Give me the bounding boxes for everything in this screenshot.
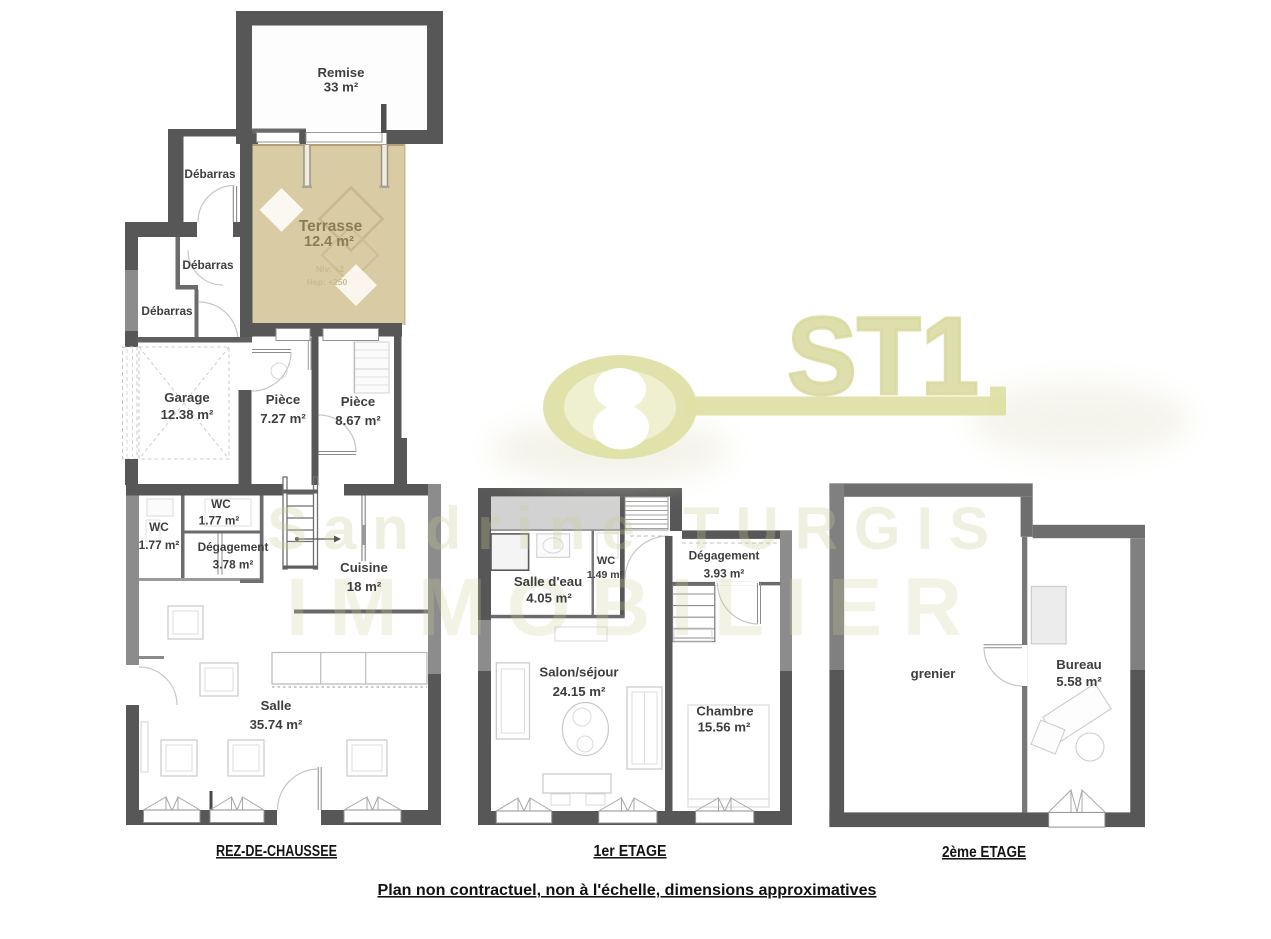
svg-text:Garage: Garage bbox=[164, 390, 209, 405]
svg-text:12.38 m²: 12.38 m² bbox=[161, 407, 214, 422]
svg-text:24.15 m²: 24.15 m² bbox=[553, 684, 606, 699]
svg-text:33 m²: 33 m² bbox=[324, 80, 359, 95]
svg-text:Hsp: +250: Hsp: +250 bbox=[307, 277, 348, 287]
svg-text:Débarras: Débarras bbox=[184, 167, 236, 181]
svg-text:3.93 m²: 3.93 m² bbox=[704, 567, 745, 581]
svg-text:Terrasse: Terrasse bbox=[299, 218, 363, 235]
svg-text:WC: WC bbox=[211, 497, 231, 511]
svg-text:15.56 m²: 15.56 m² bbox=[698, 720, 751, 735]
svg-text:Cuisine: Cuisine bbox=[340, 560, 388, 575]
svg-text:Salon/séjour: Salon/séjour bbox=[539, 665, 618, 680]
svg-text:WC: WC bbox=[149, 520, 169, 534]
svg-text:7.27 m²: 7.27 m² bbox=[260, 411, 306, 426]
svg-text:Remise: Remise bbox=[318, 65, 365, 80]
svg-text:3.78 m²: 3.78 m² bbox=[213, 558, 254, 572]
svg-text:Sandrine TURGIS: Sandrine TURGIS bbox=[267, 495, 989, 562]
svg-text:Niv: +2: Niv: +2 bbox=[316, 264, 344, 274]
svg-text:2ème ETAGE: 2ème ETAGE bbox=[942, 844, 1026, 861]
svg-text:ST1: ST1 bbox=[787, 295, 979, 418]
svg-text:Pièce: Pièce bbox=[266, 392, 300, 407]
svg-text:Plan non contractuel, non à l': Plan non contractuel, non à l'échelle, d… bbox=[378, 882, 877, 899]
svg-text:IMMOBILIER: IMMOBILIER bbox=[286, 562, 962, 653]
svg-text:4.05 m²: 4.05 m² bbox=[526, 591, 572, 606]
svg-text:Bureau: Bureau bbox=[1056, 657, 1101, 672]
svg-text:1.49 m²: 1.49 m² bbox=[587, 569, 624, 581]
svg-text:Dégagement: Dégagement bbox=[689, 549, 760, 563]
svg-text:12.4 m²: 12.4 m² bbox=[304, 234, 354, 250]
svg-text:5.58 m²: 5.58 m² bbox=[1056, 674, 1102, 689]
svg-text:18 m²: 18 m² bbox=[347, 579, 382, 594]
svg-text:Dégagement: Dégagement bbox=[198, 540, 269, 554]
svg-text:Débarras: Débarras bbox=[182, 258, 234, 272]
svg-text:WC: WC bbox=[597, 555, 615, 567]
svg-text:grenier: grenier bbox=[911, 666, 956, 681]
svg-text:Salle d'eau: Salle d'eau bbox=[514, 574, 582, 589]
svg-text:1.77 m²: 1.77 m² bbox=[199, 514, 240, 528]
svg-text:1er ETAGE: 1er ETAGE bbox=[594, 843, 667, 860]
svg-text:35.74 m²: 35.74 m² bbox=[250, 717, 303, 732]
svg-text:Salle: Salle bbox=[261, 698, 292, 713]
svg-text:Débarras: Débarras bbox=[141, 304, 193, 318]
svg-text:REZ-DE-CHAUSSEE: REZ-DE-CHAUSSEE bbox=[216, 843, 337, 860]
svg-text:Chambre: Chambre bbox=[696, 704, 753, 719]
svg-text:Pièce: Pièce bbox=[341, 394, 375, 409]
svg-text:8.67 m²: 8.67 m² bbox=[335, 413, 381, 428]
svg-text:1.77 m²: 1.77 m² bbox=[139, 538, 180, 552]
